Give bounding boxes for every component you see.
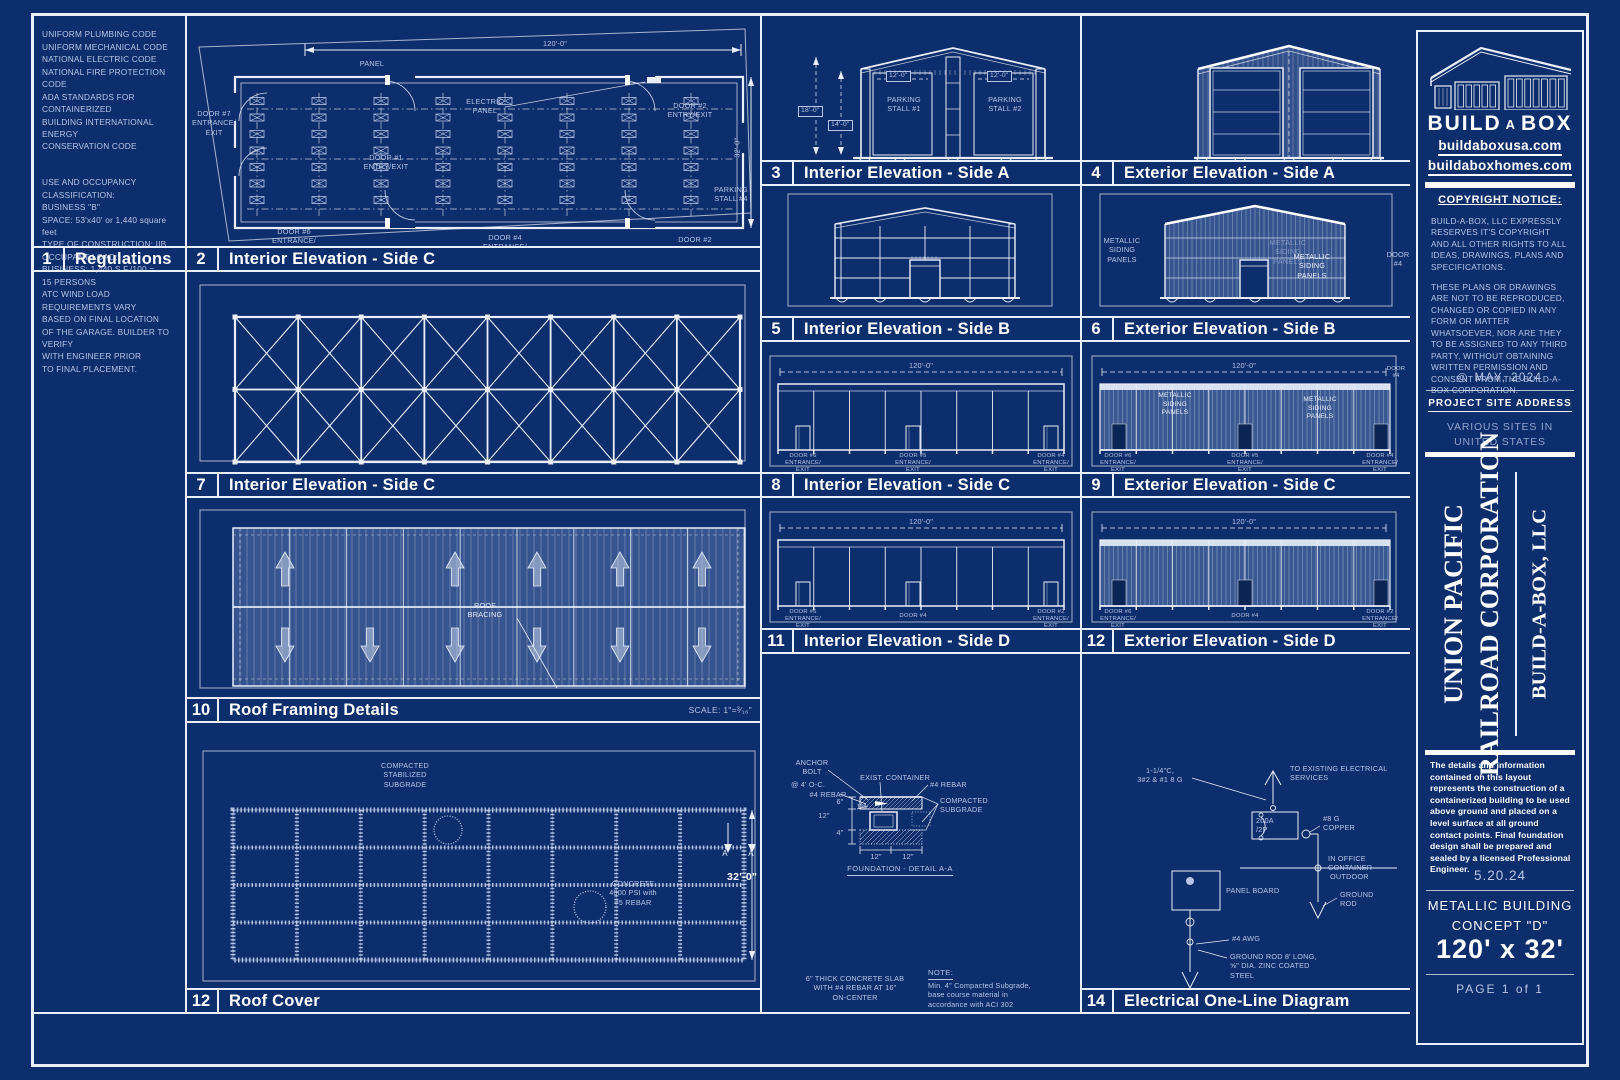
divider (1426, 890, 1574, 891)
website-url-2[interactable]: buildaboxhomes.com (1428, 158, 1572, 176)
separator-bar (1425, 182, 1575, 188)
titlebar-panel11: 11 Interior Elevation - Side D (760, 628, 1080, 654)
titlebar-panel9: 9 Exterior Elevation - Side C (1080, 472, 1410, 498)
titlebar-panel7: 7 Interior Elevation - Side C (185, 472, 760, 498)
building-size: 120' x 32' (1418, 934, 1582, 965)
titlebar-panel5: 5 Interior Elevation - Side B (760, 316, 1080, 342)
door4-label: DOOR #4 (1387, 250, 1410, 269)
client-name-line1: UNION PACIFIC (1439, 504, 1469, 704)
slab-height-dim: 32'-0" (727, 871, 757, 885)
panel-number: 12 (185, 990, 219, 1012)
company-name: BUILD-A-BOX, LLC (1529, 509, 1552, 699)
feeder-label: 1-1/4"C, 3#2 & #1 8 G (1137, 766, 1182, 785)
rebar2-label: #4 REBAR (930, 780, 967, 789)
panel-title: Exterior Elevation - Side D (1114, 632, 1336, 651)
doorR-label: DOOR #4 ENTRANCE/ EXIT (1033, 453, 1069, 472)
siding-label-2b: METALLIC SIDING PANELS (1294, 252, 1331, 280)
plan-parking-stall4-label: PARKING STALL #4 (705, 185, 757, 204)
dim-120: 120'-0" (1232, 517, 1256, 526)
copyright-date: © MAY, 2024 (1418, 370, 1582, 385)
plan-door7-label: DOOR #7 ENTRANCE/ EXIT (191, 109, 237, 137)
elevB-int-drawing (760, 186, 1080, 316)
build-a-box-logo-icon (1425, 40, 1575, 110)
doorR-label: DOOR #2 ENTRANCE/ EXIT (1362, 609, 1398, 628)
regulations-codes: UNIFORM PLUMBING CODE UNIFORM MECHANICAL… (42, 28, 180, 152)
panel-title: Interior Elevation - Side A (794, 164, 1010, 183)
panel-floor-plan: PANEL ELECTRIC PANEL DOOR #7 ENTRANCE/ E… (185, 13, 760, 246)
doorL-label: DOOR #6 ENTRANCE/ EXIT (785, 609, 821, 628)
doorM-label: DOOR #4 (899, 613, 926, 620)
to-services-label: TO EXISTING ELECTRICAL SERVICES (1290, 764, 1388, 783)
regulations-occupancy: USE AND OCCUPANCY CLASSIFICATION: BUSINE… (42, 176, 180, 375)
titlebar-panel8: 8 Interior Elevation - Side C (760, 472, 1080, 498)
roof-bracing-label: ROOF BRACING (468, 601, 503, 620)
panel-number: 2 (185, 248, 219, 270)
client-company-divider (1515, 472, 1517, 736)
panel-title: Regulations (65, 250, 172, 269)
plan-width-dim: 120'-0" (543, 39, 567, 48)
copyright-icon: © (1457, 370, 1468, 385)
door4-label: DOOR #4 (1387, 366, 1405, 380)
titlebar-panel10: 10 Roof Framing Details SCALE: 1"=³⁄₁₆" (185, 697, 760, 723)
dim-14: 14'-0" (828, 120, 853, 131)
divider (1426, 974, 1574, 975)
plan-door2-bottom-label: DOOR #2 (678, 235, 711, 244)
siding-label-1: METALLIC SIDING PANELS (1104, 236, 1141, 264)
regulations-text: UNIFORM PLUMBING CODE UNIFORM MECHANICAL… (42, 16, 180, 388)
panel-elevD-ext: 120'-0" DOOR #6 ENTRANCE/ EXIT DOOR #4 D… (1080, 498, 1410, 628)
panel-title: Electrical One-Line Diagram (1114, 992, 1349, 1011)
panel-title: Exterior Elevation - Side C (1114, 476, 1336, 495)
floor-plan-drawing (185, 13, 760, 246)
panel-elevA-ext (1080, 13, 1410, 160)
panel-elevC-ext: 120'-0" METALLIC SIDING PANELS METALLIC … (1080, 342, 1410, 472)
titlebar-panel12-left: 12 Roof Cover (185, 988, 760, 1014)
panel-number: 9 (1080, 474, 1114, 496)
detail-caption: FOUNDATION - DETAIL A-A (847, 864, 953, 876)
doorR-label: DOOR #4 ENTRANCE/ EXIT (1362, 453, 1398, 472)
dim-120: 120'-0" (909, 517, 933, 526)
client-name-line2: RAILROAD CORPORATION (1475, 432, 1505, 776)
titlebar-panel6: 6 Exterior Elevation - Side B (1080, 316, 1410, 342)
panel-electrical: 1-1/4"C, 3#2 & #1 8 G TO EXISTING ELECTR… (1080, 654, 1410, 988)
brand-pre: BUILD (1427, 112, 1501, 136)
dim-120: 120'-0" (909, 361, 933, 370)
plan-electric-panel-label: ELECTRIC PANEL (466, 97, 504, 116)
plan-door2-top-label: DOOR #2 ENTRY/EXIT (668, 101, 713, 120)
panel-number: 4 (1080, 162, 1114, 184)
doorM-label: DOOR #5 ENTRANCE/ EXIT (1227, 453, 1263, 472)
slab-section-a2: A (748, 849, 754, 859)
brand-a: A (1506, 117, 1517, 132)
drawing-date: 5.20.24 (1418, 868, 1582, 883)
office-label: IN OFFICE CONTAINER (1328, 854, 1410, 873)
slab-note2: Min. 4" Compacted Subgrade, base course … (928, 981, 1031, 1009)
concept-title: METALLIC BUILDING CONCEPT "D" (1418, 896, 1582, 936)
rod-spec-label: GROUND ROD 8' LONG, ⅝" DIA. ZINC COATED … (1230, 952, 1317, 980)
plan-door6-label: DOOR #6 ENTRANCE/ EXIT (272, 227, 316, 246)
project-site-address-heading: PROJECT SITE ADDRESS (1418, 398, 1582, 409)
plan-door1-label: DOOR #1 ENTRY/EXIT (364, 153, 409, 172)
panel-number: 10 (185, 699, 219, 721)
slab-section-a1: A (722, 849, 728, 859)
page-number: PAGE 1 of 1 (1418, 982, 1582, 996)
panel-number: 11 (760, 630, 794, 652)
panel-truss-framing (185, 272, 760, 472)
doorR-label: DOOR #2 ENTRANCE/ EXIT (1033, 609, 1069, 628)
doorL-label: DOOR #6 ENTRANCE/ EXIT (785, 453, 821, 472)
separator-bar (1425, 750, 1575, 755)
dim-12b: 12'-0" (987, 71, 1012, 82)
anchor-bolt-label: ANCHOR BOLT (796, 758, 829, 777)
dim-12in-b: 12" (870, 852, 881, 861)
panel-elevB-ext: METALLIC SIDING PANELS METALLIC SIDING P… (1080, 186, 1410, 316)
panel-elevB-int (760, 186, 1080, 316)
slab-subgrade-label: COMPACTED STABILIZED SUBGRADE (381, 761, 429, 789)
plan-door4-label: DOOR #4 ENTRANCE/ EXIT (483, 233, 527, 246)
brand-post: BOX (1521, 112, 1573, 136)
stall2-label: PARKING STALL #2 (988, 95, 1022, 114)
copyright-paragraph-1: BUILD-A-BOX, LLC EXPRESSLY RESERVES IT'S… (1431, 216, 1569, 273)
panel-board-label: PANEL BOARD (1226, 886, 1279, 895)
disclaimer-text: The details and information contained on… (1430, 760, 1572, 876)
panel-roof-framing: ROOF BRACING (185, 498, 760, 697)
brand-name: BUILD A BOX (1418, 112, 1582, 136)
stall1-label: PARKING STALL #1 (887, 95, 921, 114)
website-url-1[interactable]: buildaboxusa.com (1438, 138, 1561, 156)
panel-title: Exterior Elevation - Side B (1114, 320, 1336, 339)
awg-label: #4 AWG (1232, 934, 1260, 943)
breaker-label: 200A /2P (1256, 816, 1274, 835)
panel-number: 7 (185, 474, 219, 496)
copyright-date-text: MAY, 2024 (1475, 372, 1543, 384)
copper-label: #8 G COPPER (1323, 814, 1355, 833)
panel-foundation-detail: ANCHOR BOLT @ 4' O-C. #4 REBAR EXIST. CO… (760, 654, 1080, 1014)
foundation-detail-drawing (760, 654, 1080, 1014)
slab-note1: 6" THICK CONCRETE SLAB WITH #4 REBAR AT … (806, 974, 905, 1002)
panel-number: 6 (1080, 318, 1114, 340)
titlebar-panel4: 4 Exterior Elevation - Side A (1080, 160, 1410, 186)
panel-title: Interior Elevation - Side C (219, 476, 435, 495)
titlebar-panel12-right: 12 Exterior Elevation - Side D (1080, 628, 1410, 654)
siding-label-2: METALLIC SIDING PANELS (1303, 396, 1336, 422)
panel-title: Exterior Elevation - Side A (1114, 164, 1335, 183)
dim-4in: 4" (836, 828, 843, 837)
dim-6in: 6" (836, 797, 843, 806)
panel-number: 14 (1080, 990, 1114, 1012)
panel-elevD-int: 120'-0" DOOR #6 ENTRANCE/ EXIT DOOR #4 D… (760, 498, 1080, 628)
panel-title: Interior Elevation - Side C (794, 476, 1010, 495)
titlebar-panel2: 2 Interior Elevation - Side C (185, 246, 760, 272)
dim-12in-a: 12" (818, 811, 829, 820)
roof-drawing (185, 498, 760, 697)
doorL-label: DOOR #6 ENTRANCE/ EXIT (1100, 609, 1136, 628)
ground-rod-label: GROUND ROD (1340, 890, 1374, 909)
dim-12a: 12'-0" (886, 71, 911, 82)
panel-number: 12 (1080, 630, 1114, 652)
titlebar-regulations: 1 Regulations (31, 246, 185, 272)
panel-elevA-int: 18'-0" 14'-0" 12'-0" 12'-0" PARKING STAL… (760, 13, 1080, 160)
doorM-label: DOOR #4 (1231, 613, 1258, 620)
panel-title: Roof Cover (219, 992, 320, 1011)
website-link-1[interactable]: buildaboxusa.com (1418, 138, 1582, 153)
panel-title: Roof Framing Details (219, 701, 399, 720)
slab-note2-head: NOTE: (928, 968, 953, 980)
plan-height-dim: 32'-0" (732, 138, 741, 158)
website-link-2[interactable]: buildaboxhomes.com (1418, 158, 1582, 173)
panel-scale: SCALE: 1"=³⁄₁₆" (689, 705, 760, 715)
copyright-heading: COPYRIGHT NOTICE: (1418, 194, 1582, 206)
panel-title: Interior Elevation - Side B (794, 320, 1010, 339)
siding-label-1: METALLIC SIDING PANELS (1158, 392, 1191, 418)
panel-title: Interior Elevation - Side D (794, 632, 1010, 651)
panel-number: 8 (760, 474, 794, 496)
blueprint-sheet: UNIFORM PLUMBING CODE UNIFORM MECHANICAL… (0, 0, 1620, 1080)
dim-18: 18'-0" (798, 106, 823, 117)
dim-120: 120'-0" (1232, 361, 1256, 370)
elevA-ext-drawing (1080, 13, 1410, 160)
psa-heading-text: PROJECT SITE ADDRESS (1428, 398, 1572, 412)
slab-concrete-label: CONCRETE 4000 PSI with #5 REBAR (609, 879, 657, 907)
exist-container-label: EXIST. CONTAINER (860, 773, 930, 782)
panel-elevC-int: 120'-0" DOOR #6 ENTRANCE/ EXIT DOOR #5 E… (760, 342, 1080, 472)
panel-number: 3 (760, 162, 794, 184)
slope-label: 1% (857, 802, 868, 811)
panel-number: 1 (31, 248, 65, 270)
doorL-label: DOOR #6 ENTRANCE/ EXIT (1100, 453, 1136, 472)
slab-drawing (185, 723, 760, 988)
title-block: BUILD A BOX buildaboxusa.com buildaboxho… (1416, 30, 1584, 1045)
panel-number: 5 (760, 318, 794, 340)
compacted-subgrade-label: COMPACTED SUBGRADE (940, 796, 988, 815)
plan-panel-label: PANEL (360, 59, 384, 68)
truss-drawing (185, 272, 760, 472)
titlebar-panel3: 3 Interior Elevation - Side A (760, 160, 1080, 186)
panel-title: Interior Elevation - Side C (219, 250, 435, 269)
doorM-label: DOOR #5 ENTRANCE/ EXIT (895, 453, 931, 472)
divider (1426, 390, 1574, 391)
dim-12in-c: 12" (902, 852, 913, 861)
elevA-int-drawing (760, 13, 1080, 160)
panel-slab-plan: COMPACTED STABILIZED SUBGRADE CONCRETE 4… (185, 723, 760, 988)
titlebar-panel14: 14 Electrical One-Line Diagram (1080, 988, 1410, 1014)
anchor-spacing-label: @ 4' O-C. (791, 780, 825, 789)
outdoor-label: OUTDOOR (1330, 872, 1369, 881)
